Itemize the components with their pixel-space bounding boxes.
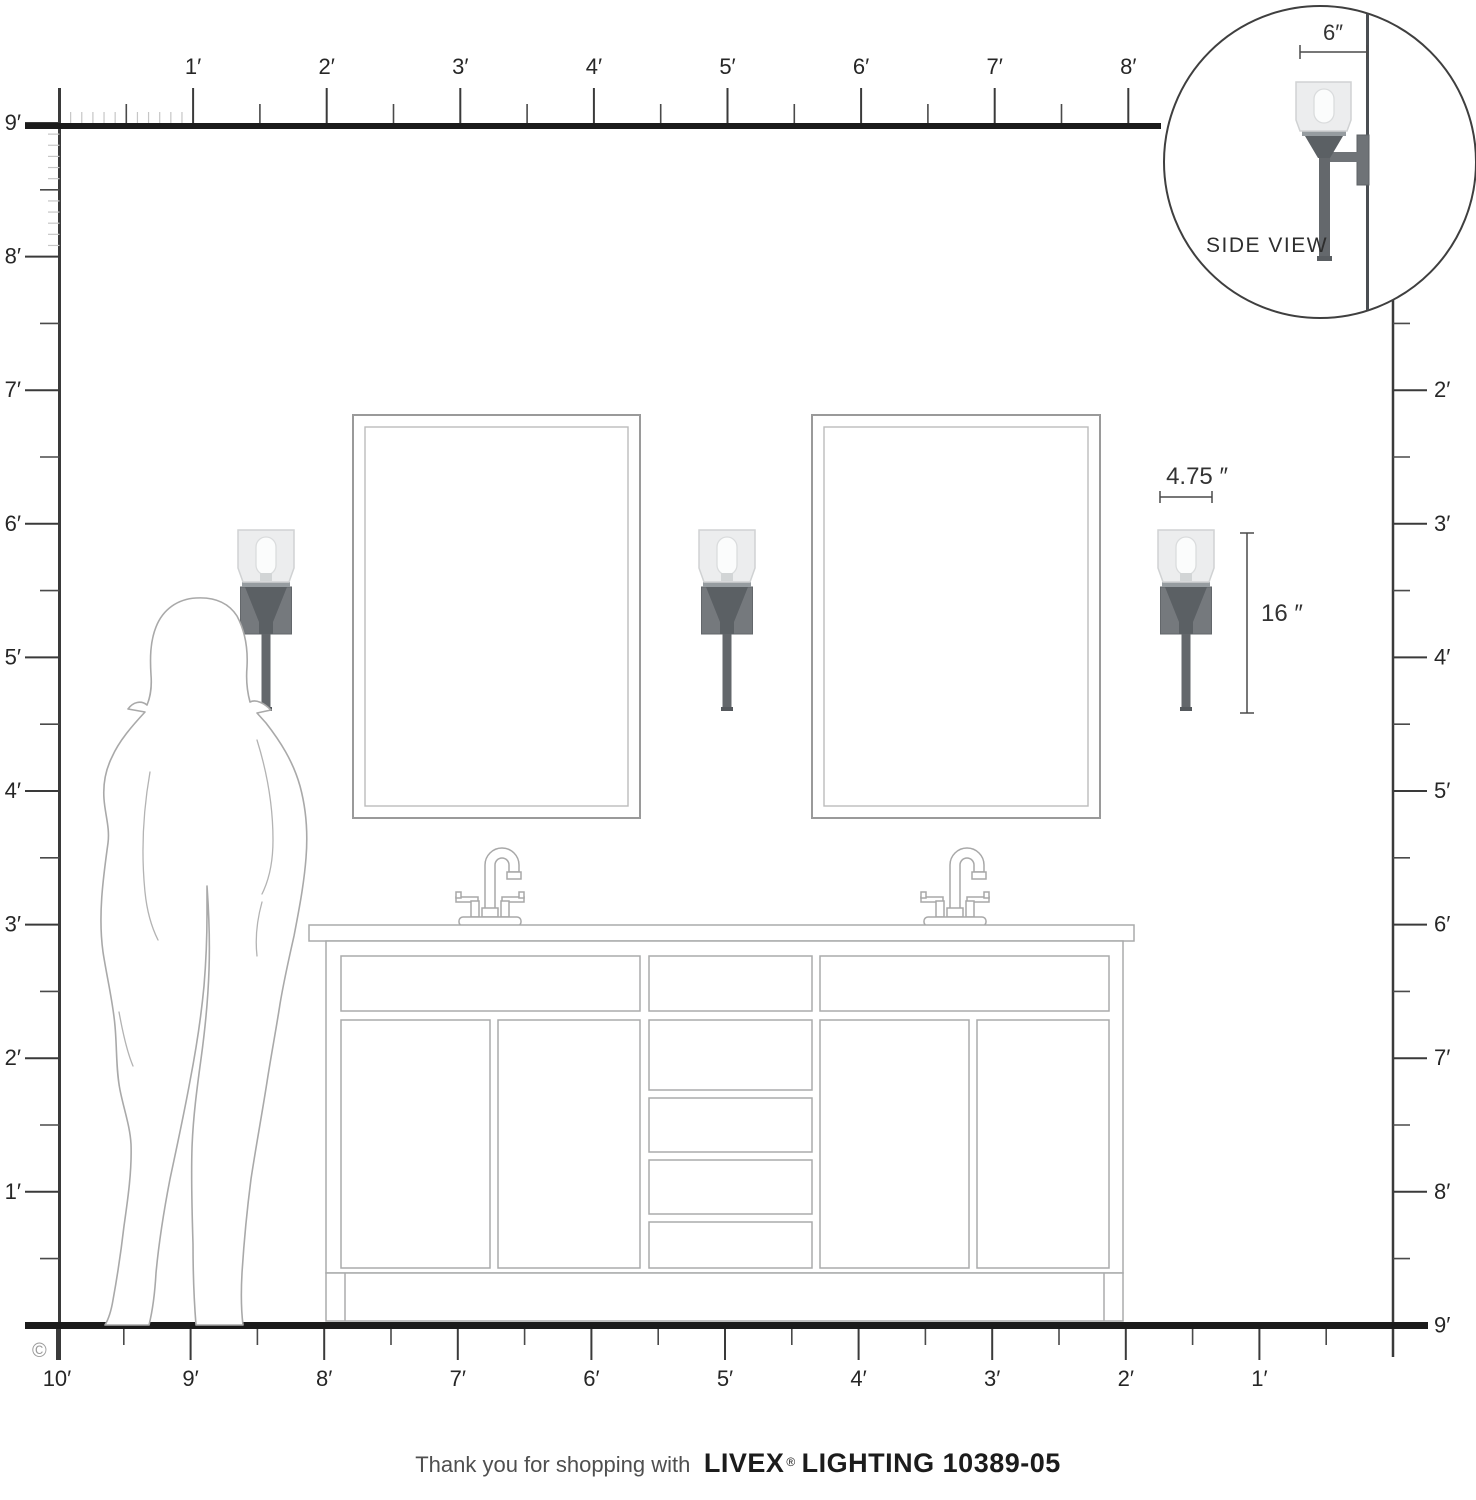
left-ruler: 9′8′7′6′5′4′3′2′1′: [5, 88, 60, 1360]
ruler-label: 4′: [586, 54, 602, 79]
ruler-label: 1′: [1251, 1366, 1267, 1391]
ruler-label: 1′: [185, 54, 201, 79]
countertop: [309, 925, 1134, 941]
ruler-label: 7′: [450, 1366, 466, 1391]
ruler-label: 5′: [1434, 778, 1450, 803]
cabinet-door: [341, 1020, 490, 1268]
ruler-label: 5′: [717, 1366, 733, 1391]
ruler-label: 7′: [987, 54, 1003, 79]
right-ruler: 2′3′4′5′6′7′8′9′: [1393, 300, 1450, 1357]
ruler-label: 6′: [583, 1366, 599, 1391]
drawer: [649, 1020, 812, 1090]
ruler-label: 4′: [1434, 644, 1450, 669]
ruler-label: 6′: [1434, 912, 1450, 937]
ruler-label: 3′: [984, 1366, 1000, 1391]
depth-dimension-label: 6″: [1323, 20, 1343, 45]
fixture-height-label: 16 ″: [1261, 600, 1303, 627]
mirror-left: [353, 415, 640, 818]
false-drawer-panel: [649, 956, 812, 1011]
ruler-label: 5′: [5, 644, 21, 669]
ruler-label: 10′: [43, 1366, 72, 1391]
ruler-label: 2′: [5, 1045, 21, 1070]
ruler-label: 7′: [1434, 1045, 1450, 1070]
mirror-frame: [353, 415, 640, 818]
ruler-label: 4′: [5, 778, 21, 803]
vanity-base: [326, 1273, 1123, 1321]
shade-width-dimension: 4.75 ″: [1160, 463, 1228, 503]
ruler-label: 8′: [1120, 54, 1136, 79]
top-ruler: 1′2′3′4′5′6′7′8′: [71, 54, 1137, 126]
ruler-label: 9′: [1434, 1312, 1450, 1337]
ruler-label: 3′: [1434, 511, 1450, 536]
ruler-label: 3′: [5, 912, 21, 937]
ruler-label: 6′: [853, 54, 869, 79]
registered-mark-icon: ®: [786, 1455, 795, 1469]
faucet-right: [921, 848, 989, 926]
shade-width-label: 4.75 ″: [1166, 463, 1228, 490]
fixture-height-dimension: 16 ″: [1240, 533, 1303, 713]
scale-figure: [101, 598, 307, 1325]
ruler-label: 4′: [850, 1366, 866, 1391]
ruler-label: 8′: [1434, 1179, 1450, 1204]
drawer: [649, 1222, 812, 1268]
ruler-label: 3′: [452, 54, 468, 79]
vanity: [309, 848, 1134, 1321]
sconce-center: [699, 530, 755, 711]
false-drawer-panel: [341, 956, 640, 1011]
cabinet-door: [820, 1020, 969, 1268]
ruler-label: 6′: [5, 511, 21, 536]
faucet-left: [456, 848, 524, 926]
side-view-label: SIDE VIEW: [1206, 234, 1328, 257]
ruler-label: 2′: [319, 54, 335, 79]
diagram-scene: 1′2′3′4′5′6′7′8′ 9′8′7′6′5′4′3′2′1′ 2′3′…: [0, 0, 1476, 1500]
figure-outline: [101, 598, 307, 1325]
ruler-label: 2′: [1434, 377, 1450, 402]
cabinet-door: [977, 1020, 1109, 1268]
mirror-frame: [812, 415, 1100, 818]
ruler-label: 8′: [316, 1366, 332, 1391]
ruler-label: 9′: [182, 1366, 198, 1391]
dimension-diagram: 1′2′3′4′5′6′7′8′ 9′8′7′6′5′4′3′2′1′ 2′3′…: [0, 0, 1476, 1500]
ruler-label: 8′: [5, 244, 21, 269]
ruler-label: 9′: [5, 110, 21, 135]
ruler-label: 1′: [5, 1179, 21, 1204]
sconce-right: [1158, 530, 1214, 711]
ruler-label: 5′: [719, 54, 735, 79]
brand-name: LIVEX: [704, 1448, 785, 1478]
ruler-label: 2′: [1118, 1366, 1134, 1391]
footer-prefix: Thank you for shopping with: [415, 1452, 690, 1477]
mirror-right: [812, 415, 1100, 818]
false-drawer-panel: [820, 956, 1109, 1011]
drawer: [649, 1098, 812, 1152]
drawer: [649, 1160, 812, 1214]
ruler-label: 7′: [5, 377, 21, 402]
cabinet-door: [498, 1020, 640, 1268]
footer: Thank you for shopping with LIVEX® LIGHT…: [0, 1448, 1476, 1479]
side-view-inset: 6″ SIDE VIEW: [1164, 6, 1476, 318]
bottom-ruler: 10′9′8′7′6′5′4′3′2′1′: [43, 1329, 1327, 1391]
product-number: LIGHTING 10389-05: [802, 1448, 1061, 1478]
copyright-symbol: ©: [32, 1340, 47, 1362]
